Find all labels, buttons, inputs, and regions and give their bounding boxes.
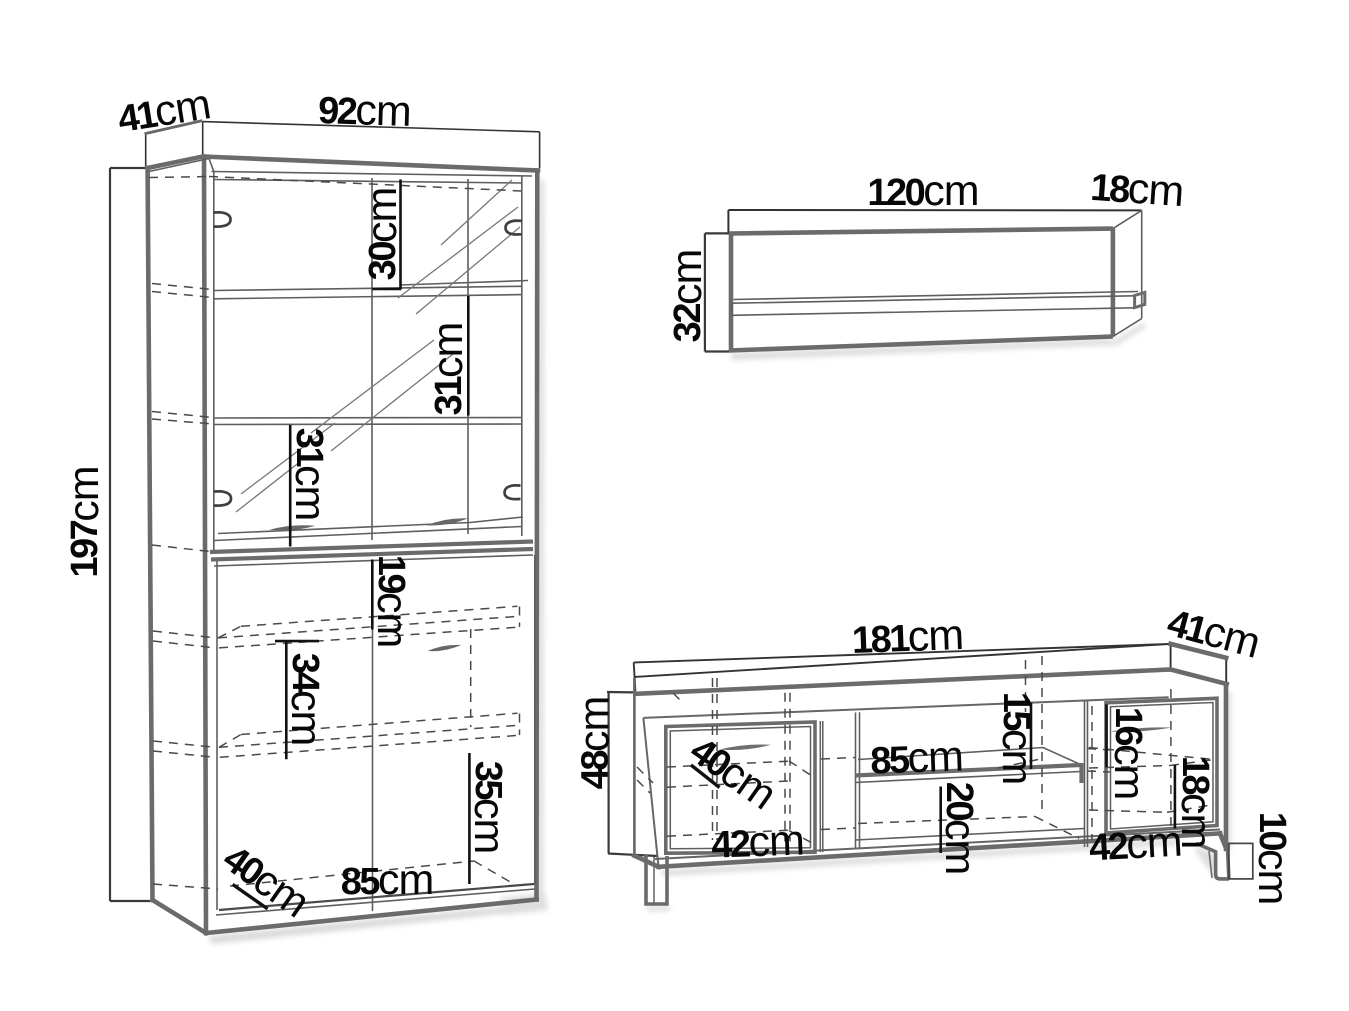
svg-text:31cm: 31cm (286, 428, 334, 521)
svg-text:19cm: 19cm (368, 555, 416, 648)
svg-text:16cm: 16cm (1105, 707, 1153, 800)
svg-text:35cm: 35cm (465, 761, 513, 854)
svg-text:197cm: 197cm (60, 466, 108, 577)
svg-text:30cm: 30cm (358, 188, 406, 281)
svg-text:10cm: 10cm (1249, 812, 1297, 905)
svg-text:18cm: 18cm (1089, 162, 1185, 216)
svg-text:85cm: 85cm (341, 856, 434, 904)
svg-text:85cm: 85cm (869, 732, 963, 783)
svg-text:20cm: 20cm (936, 782, 984, 875)
svg-text:48cm: 48cm (571, 697, 619, 790)
svg-text:42cm: 42cm (710, 816, 804, 867)
svg-text:120cm: 120cm (867, 167, 978, 215)
svg-text:31cm: 31cm (424, 323, 472, 416)
svg-text:15cm: 15cm (993, 692, 1041, 785)
svg-text:32cm: 32cm (663, 250, 711, 343)
svg-text:181cm: 181cm (851, 611, 964, 663)
svg-text:92cm: 92cm (317, 85, 411, 136)
svg-text:34cm: 34cm (282, 653, 330, 746)
